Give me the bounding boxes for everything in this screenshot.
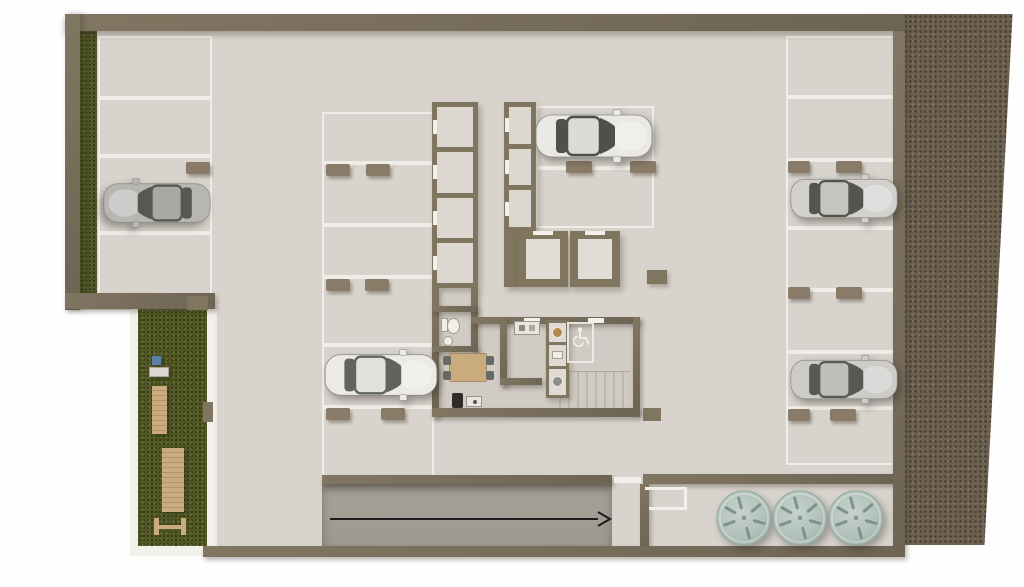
drive-direction-arrow [326, 508, 618, 530]
car-sedan-white [534, 109, 654, 163]
car-coupe-white [323, 349, 439, 401]
car-sedan-gray [102, 178, 212, 228]
car-suv-silver [789, 352, 899, 407]
floor-plan-render [0, 0, 1024, 587]
vehicles-layer [0, 0, 1024, 587]
car-sedan-silver [789, 172, 899, 225]
